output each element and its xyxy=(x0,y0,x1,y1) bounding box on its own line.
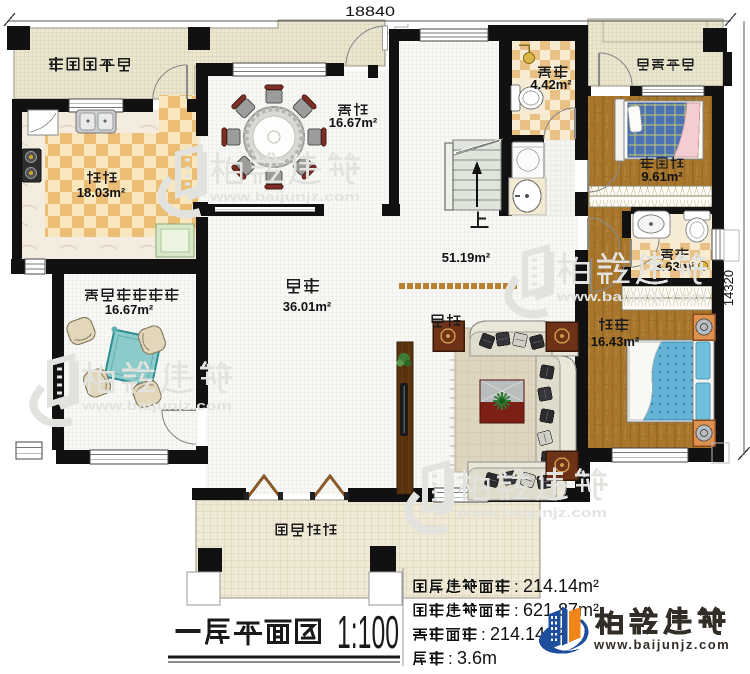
svg-text::: : xyxy=(514,601,519,620)
svg-text:18.03m²: 18.03m² xyxy=(77,185,126,200)
svg-text:18840: 18840 xyxy=(345,3,395,19)
svg-text:14320: 14320 xyxy=(721,270,736,306)
svg-text:16.43m²: 16.43m² xyxy=(591,334,640,349)
svg-text:3.6m: 3.6m xyxy=(457,648,497,668)
svg-text:621.87m²: 621.87m² xyxy=(523,600,599,620)
svg-text::: : xyxy=(514,577,519,596)
svg-text:36.01m²: 36.01m² xyxy=(283,299,332,314)
svg-text::: : xyxy=(448,649,453,668)
svg-text::: : xyxy=(481,625,486,644)
svg-text:51.19m²: 51.19m² xyxy=(442,250,491,265)
svg-text:16.67m²: 16.67m² xyxy=(105,302,154,317)
svg-text:www.baijunjz.com: www.baijunjz.com xyxy=(209,189,360,204)
svg-text:www.baijunjz.com: www.baijunjz.com xyxy=(456,505,607,520)
svg-text:4.42m²: 4.42m² xyxy=(530,77,572,92)
svg-text:www.baijunjz.com: www.baijunjz.com xyxy=(556,289,707,304)
svg-text:16.67m²: 16.67m² xyxy=(329,115,378,130)
svg-text:1:100: 1:100 xyxy=(337,606,399,658)
svg-text:214.14m²: 214.14m² xyxy=(523,576,599,596)
svg-text:9.61m²: 9.61m² xyxy=(641,169,683,184)
svg-text:www.baijunjz.com: www.baijunjz.com xyxy=(593,637,730,652)
svg-text:www.baijunjz.com: www.baijunjz.com xyxy=(81,398,232,413)
